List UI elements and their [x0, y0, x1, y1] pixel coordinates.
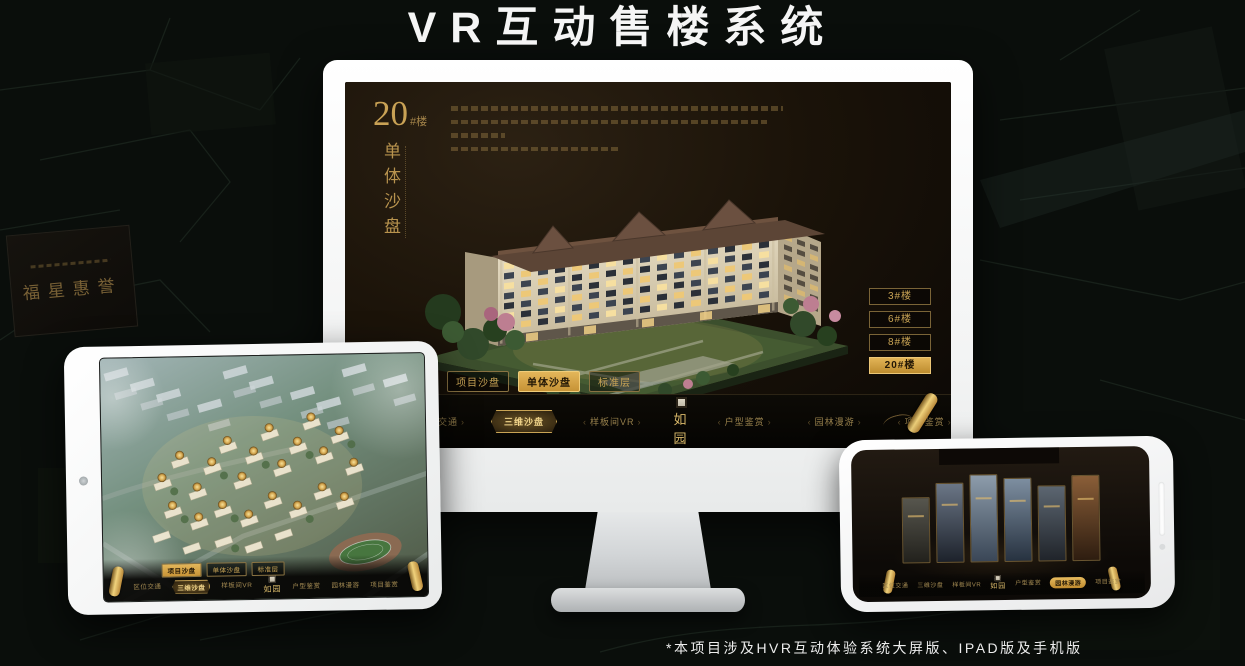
menu-item[interactable]: 三维沙盘 — [491, 410, 557, 433]
brand-seal-icon — [269, 576, 276, 583]
scene-panel[interactable] — [969, 474, 998, 562]
view-tab[interactable]: 标准层 — [251, 561, 284, 576]
menu-item[interactable]: 三维沙盘 — [917, 579, 943, 588]
phone-mockup: 区位交通三维沙盘样板间VR 如园 户型鉴赏园林漫游项目鉴赏 — [839, 436, 1175, 613]
scene-panel[interactable] — [1071, 475, 1100, 561]
tablet-menubar: 区位交通三维沙盘样板间VR 如园 户型鉴赏园林漫游项目鉴赏 — [104, 573, 428, 598]
menu-item[interactable]: 项目鉴赏 — [1095, 576, 1121, 587]
block-number: 20 — [373, 94, 408, 133]
building-model-render — [403, 154, 863, 404]
floor-button[interactable]: 6#楼 — [869, 311, 931, 328]
menu-item[interactable]: 区位交通 — [133, 580, 161, 594]
monitor-base — [551, 588, 745, 612]
footnote-text: *本项目涉及HVR互动体验系统大屏版、IPAD版及手机版 — [666, 638, 1083, 658]
menu-item[interactable]: 园林漫游 — [331, 579, 359, 589]
menu-item[interactable]: 样板间VR — [952, 579, 981, 588]
scene-panel[interactable] — [1003, 478, 1032, 562]
brand-logo[interactable]: 如园 — [674, 397, 690, 447]
menu-item[interactable]: 园林漫游 — [1050, 576, 1086, 588]
promo-composition: 福星惠誉 VR互动售楼系统 20#楼 单体沙盘 — [0, 0, 1245, 666]
plaque-text: 福星惠誉 — [22, 271, 124, 305]
brand-logo-text: 如园 — [674, 409, 690, 447]
menu-group-left: 区位交通三维沙盘样板间VR — [133, 579, 252, 595]
view-tab[interactable]: 标准层 — [589, 371, 640, 392]
brand-logo[interactable]: 如园 — [990, 575, 1006, 591]
description-fine-print — [451, 106, 783, 160]
monitor-stand — [585, 512, 711, 590]
phone-screen: 区位交通三维沙盘样板间VR 如园 户型鉴赏园林漫游项目鉴赏 — [851, 446, 1151, 602]
view-tab[interactable]: 单体沙盘 — [206, 562, 246, 577]
menu-group-right: 户型鉴赏园林漫游项目鉴赏 — [1015, 576, 1121, 588]
phone-camera-icon — [1159, 544, 1165, 550]
scene-panel[interactable] — [1037, 485, 1066, 561]
menu-group-left: 区位交通三维沙盘样板间VR — [882, 579, 981, 589]
brand-logo[interactable]: 如园 — [263, 576, 281, 595]
brand-logo-text: 如园 — [263, 584, 281, 595]
scene-panel[interactable] — [935, 483, 964, 563]
view-tab-group: 项目沙盘 单体沙盘 标准层 — [447, 371, 640, 392]
phone-nav-bar: 区位交通三维沙盘样板间VR 如园 户型鉴赏园林漫游项目鉴赏 — [859, 571, 1145, 597]
tablet-mockup: 项目沙盘单体沙盘标准层 区位交通三维沙盘样板间VR 如园 户型鉴赏园林漫游项目鉴… — [64, 341, 443, 615]
menu-item[interactable]: 户型鉴赏 — [292, 579, 320, 589]
menu-item[interactable]: 户型鉴赏 — [1015, 577, 1041, 588]
floor-button-group: 3#楼 6#楼 8#楼 20#楼 — [869, 288, 931, 374]
background-award-plaque: 福星惠誉 — [6, 225, 138, 337]
brand-seal-icon — [676, 397, 687, 408]
floor-button[interactable]: 8#楼 — [869, 334, 931, 351]
block-unit: #楼 — [410, 116, 427, 128]
block-heading: 20#楼 — [373, 96, 427, 132]
plaque-engraving-line — [30, 259, 110, 269]
block-subtitle: 单体沙盘 — [378, 142, 403, 242]
view-tab[interactable]: 项目沙盘 — [161, 563, 201, 578]
view-tab[interactable]: 单体沙盘 — [518, 371, 580, 392]
menu-group-left: 区位交通三维沙盘样板间VR — [409, 410, 644, 433]
tablet-camera-icon — [79, 476, 88, 485]
brand-logo-text: 如园 — [990, 581, 1006, 591]
menu-group-right: 户型鉴赏园林漫游项目鉴赏 — [292, 578, 398, 590]
phone-side-pill — [1158, 482, 1165, 536]
view-tab[interactable]: 项目沙盘 — [447, 371, 509, 392]
menu-item[interactable]: 园林漫游 — [806, 412, 864, 431]
floor-button[interactable]: 3#楼 — [869, 288, 931, 305]
tablet-screen: 项目沙盘单体沙盘标准层 区位交通三维沙盘样板间VR 如园 户型鉴赏园林漫游项目鉴… — [99, 352, 429, 603]
phone-menubar: 区位交通三维沙盘样板间VR 如园 户型鉴赏园林漫游项目鉴赏 — [859, 573, 1145, 593]
menu-item[interactable]: 区位交通 — [882, 580, 908, 589]
menu-item[interactable]: 样板间VR — [221, 579, 252, 594]
scroll-menu-handle[interactable] — [883, 388, 937, 440]
floor-button[interactable]: 20#楼 — [869, 357, 931, 374]
scene-beam — [939, 447, 1059, 465]
gold-scroll-icon — [905, 391, 939, 435]
menu-item[interactable]: 户型鉴赏 — [716, 412, 774, 431]
page-title: VR互动售楼系统 — [0, 0, 1245, 56]
menu-item[interactable]: 样板间VR — [581, 412, 644, 431]
scene-gallery — [901, 473, 1100, 564]
tablet-nav-bar: 项目沙盘单体沙盘标准层 区位交通三维沙盘样板间VR 如园 户型鉴赏园林漫游项目鉴… — [103, 554, 428, 602]
scene-panel[interactable] — [902, 497, 931, 563]
menu-item[interactable]: 三维沙盘 — [172, 579, 210, 594]
menu-item[interactable]: 项目鉴赏 — [370, 578, 398, 588]
